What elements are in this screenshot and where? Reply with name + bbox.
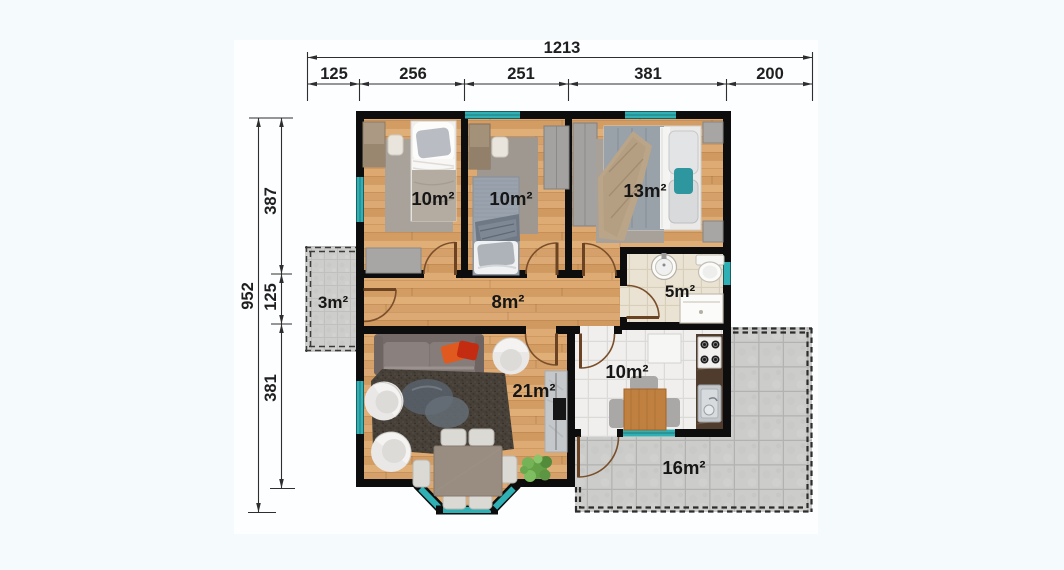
svg-text:5m²: 5m² (665, 282, 696, 301)
svg-text:10m²: 10m² (411, 188, 454, 209)
svg-text:387: 387 (262, 187, 280, 215)
svg-text:200: 200 (756, 65, 784, 83)
svg-text:381: 381 (262, 374, 280, 402)
svg-text:125: 125 (320, 65, 348, 83)
svg-text:10m²: 10m² (605, 361, 648, 382)
svg-text:251: 251 (507, 65, 535, 83)
svg-text:16m²: 16m² (662, 457, 705, 478)
svg-text:952: 952 (239, 282, 257, 310)
svg-text:125: 125 (262, 283, 280, 311)
svg-text:10m²: 10m² (489, 188, 532, 209)
svg-text:1213: 1213 (544, 39, 581, 57)
svg-text:3m²: 3m² (318, 293, 349, 312)
svg-text:381: 381 (634, 65, 662, 83)
svg-text:21m²: 21m² (512, 380, 555, 401)
svg-text:256: 256 (399, 65, 427, 83)
svg-text:13m²: 13m² (623, 180, 666, 201)
svg-text:8m²: 8m² (492, 291, 525, 312)
